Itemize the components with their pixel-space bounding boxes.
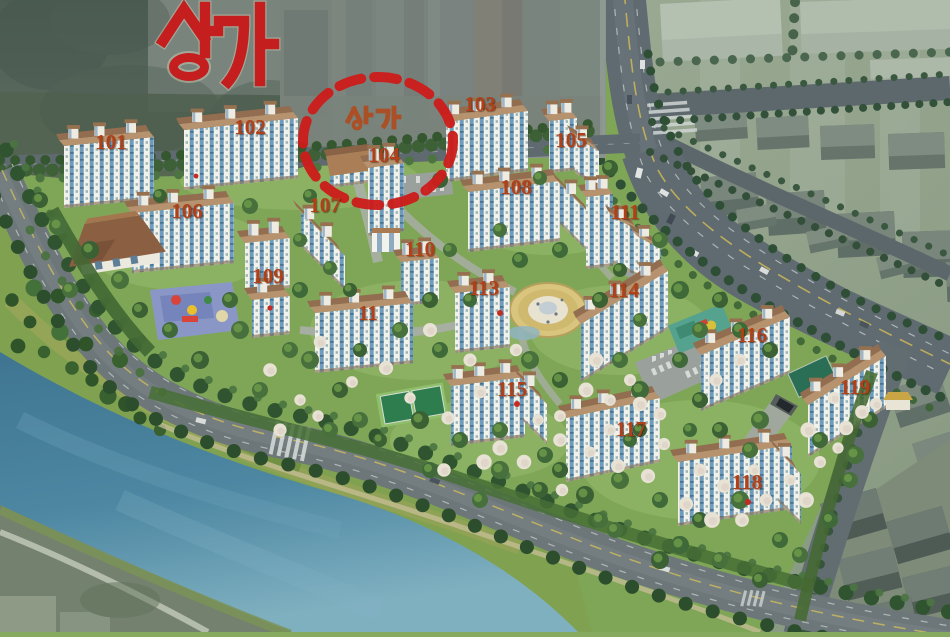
svg-text:116: 116 [737, 323, 767, 347]
svg-text:103: 103 [464, 92, 496, 116]
svg-text:102: 102 [234, 115, 266, 139]
svg-text:106: 106 [171, 199, 203, 223]
svg-text:11: 11 [358, 301, 378, 325]
svg-text:117: 117 [616, 417, 646, 441]
svg-text:101: 101 [95, 130, 127, 154]
svg-text:115: 115 [497, 377, 527, 401]
svg-text:110: 110 [405, 237, 435, 261]
svg-text:108: 108 [500, 175, 532, 199]
svg-text:104: 104 [368, 143, 400, 167]
svg-text:105: 105 [555, 128, 587, 152]
svg-text:118: 118 [732, 470, 762, 494]
svg-text:114: 114 [609, 278, 640, 302]
svg-text:113: 113 [469, 276, 499, 300]
svg-text:107: 107 [309, 193, 341, 217]
svg-text:109: 109 [252, 264, 284, 288]
svg-text:119: 119 [840, 375, 870, 399]
svg-text:111: 111 [610, 200, 639, 224]
